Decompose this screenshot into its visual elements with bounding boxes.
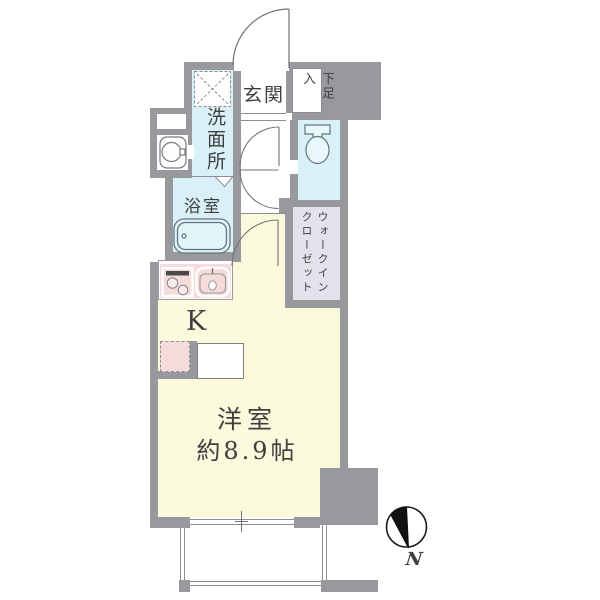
floorplan-canvas: 玄関 下足入 洗面所 浴室 ウォークイン クローゼット K 洋室 約8.9帖 N <box>0 0 600 600</box>
compass-icon <box>387 507 427 548</box>
bathroom-label: 浴室 <box>181 192 225 217</box>
bathtub-icon <box>174 219 230 253</box>
shoe-box-label: 下足入 <box>299 72 337 112</box>
kitchen-sink-icon <box>197 268 230 296</box>
laundry-pan-icon <box>195 72 231 107</box>
kitchen-label: K <box>186 306 206 337</box>
washroom-door-icon <box>240 127 279 166</box>
washroom-label: 洗面所 <box>202 107 229 185</box>
window-tick-icon <box>235 511 248 532</box>
vanity-sink-icon <box>160 137 186 168</box>
main-room-size-label: 約8.9帖 <box>172 431 322 466</box>
walk-in-closet-label-line1: ウォークイン <box>314 211 330 301</box>
entrance-door-icon <box>233 9 289 68</box>
hallway-door-icon <box>240 170 279 209</box>
living-door-icon <box>232 220 278 266</box>
entrance-label: 玄関 <box>241 80 287 107</box>
walk-in-closet-label-line2: クローゼット <box>298 211 314 301</box>
stove-icon <box>163 268 193 296</box>
compass-north-label: N <box>402 549 426 570</box>
toilet-icon <box>305 125 330 164</box>
walk-in-closet-label: ウォークイン クローゼット <box>298 211 330 301</box>
